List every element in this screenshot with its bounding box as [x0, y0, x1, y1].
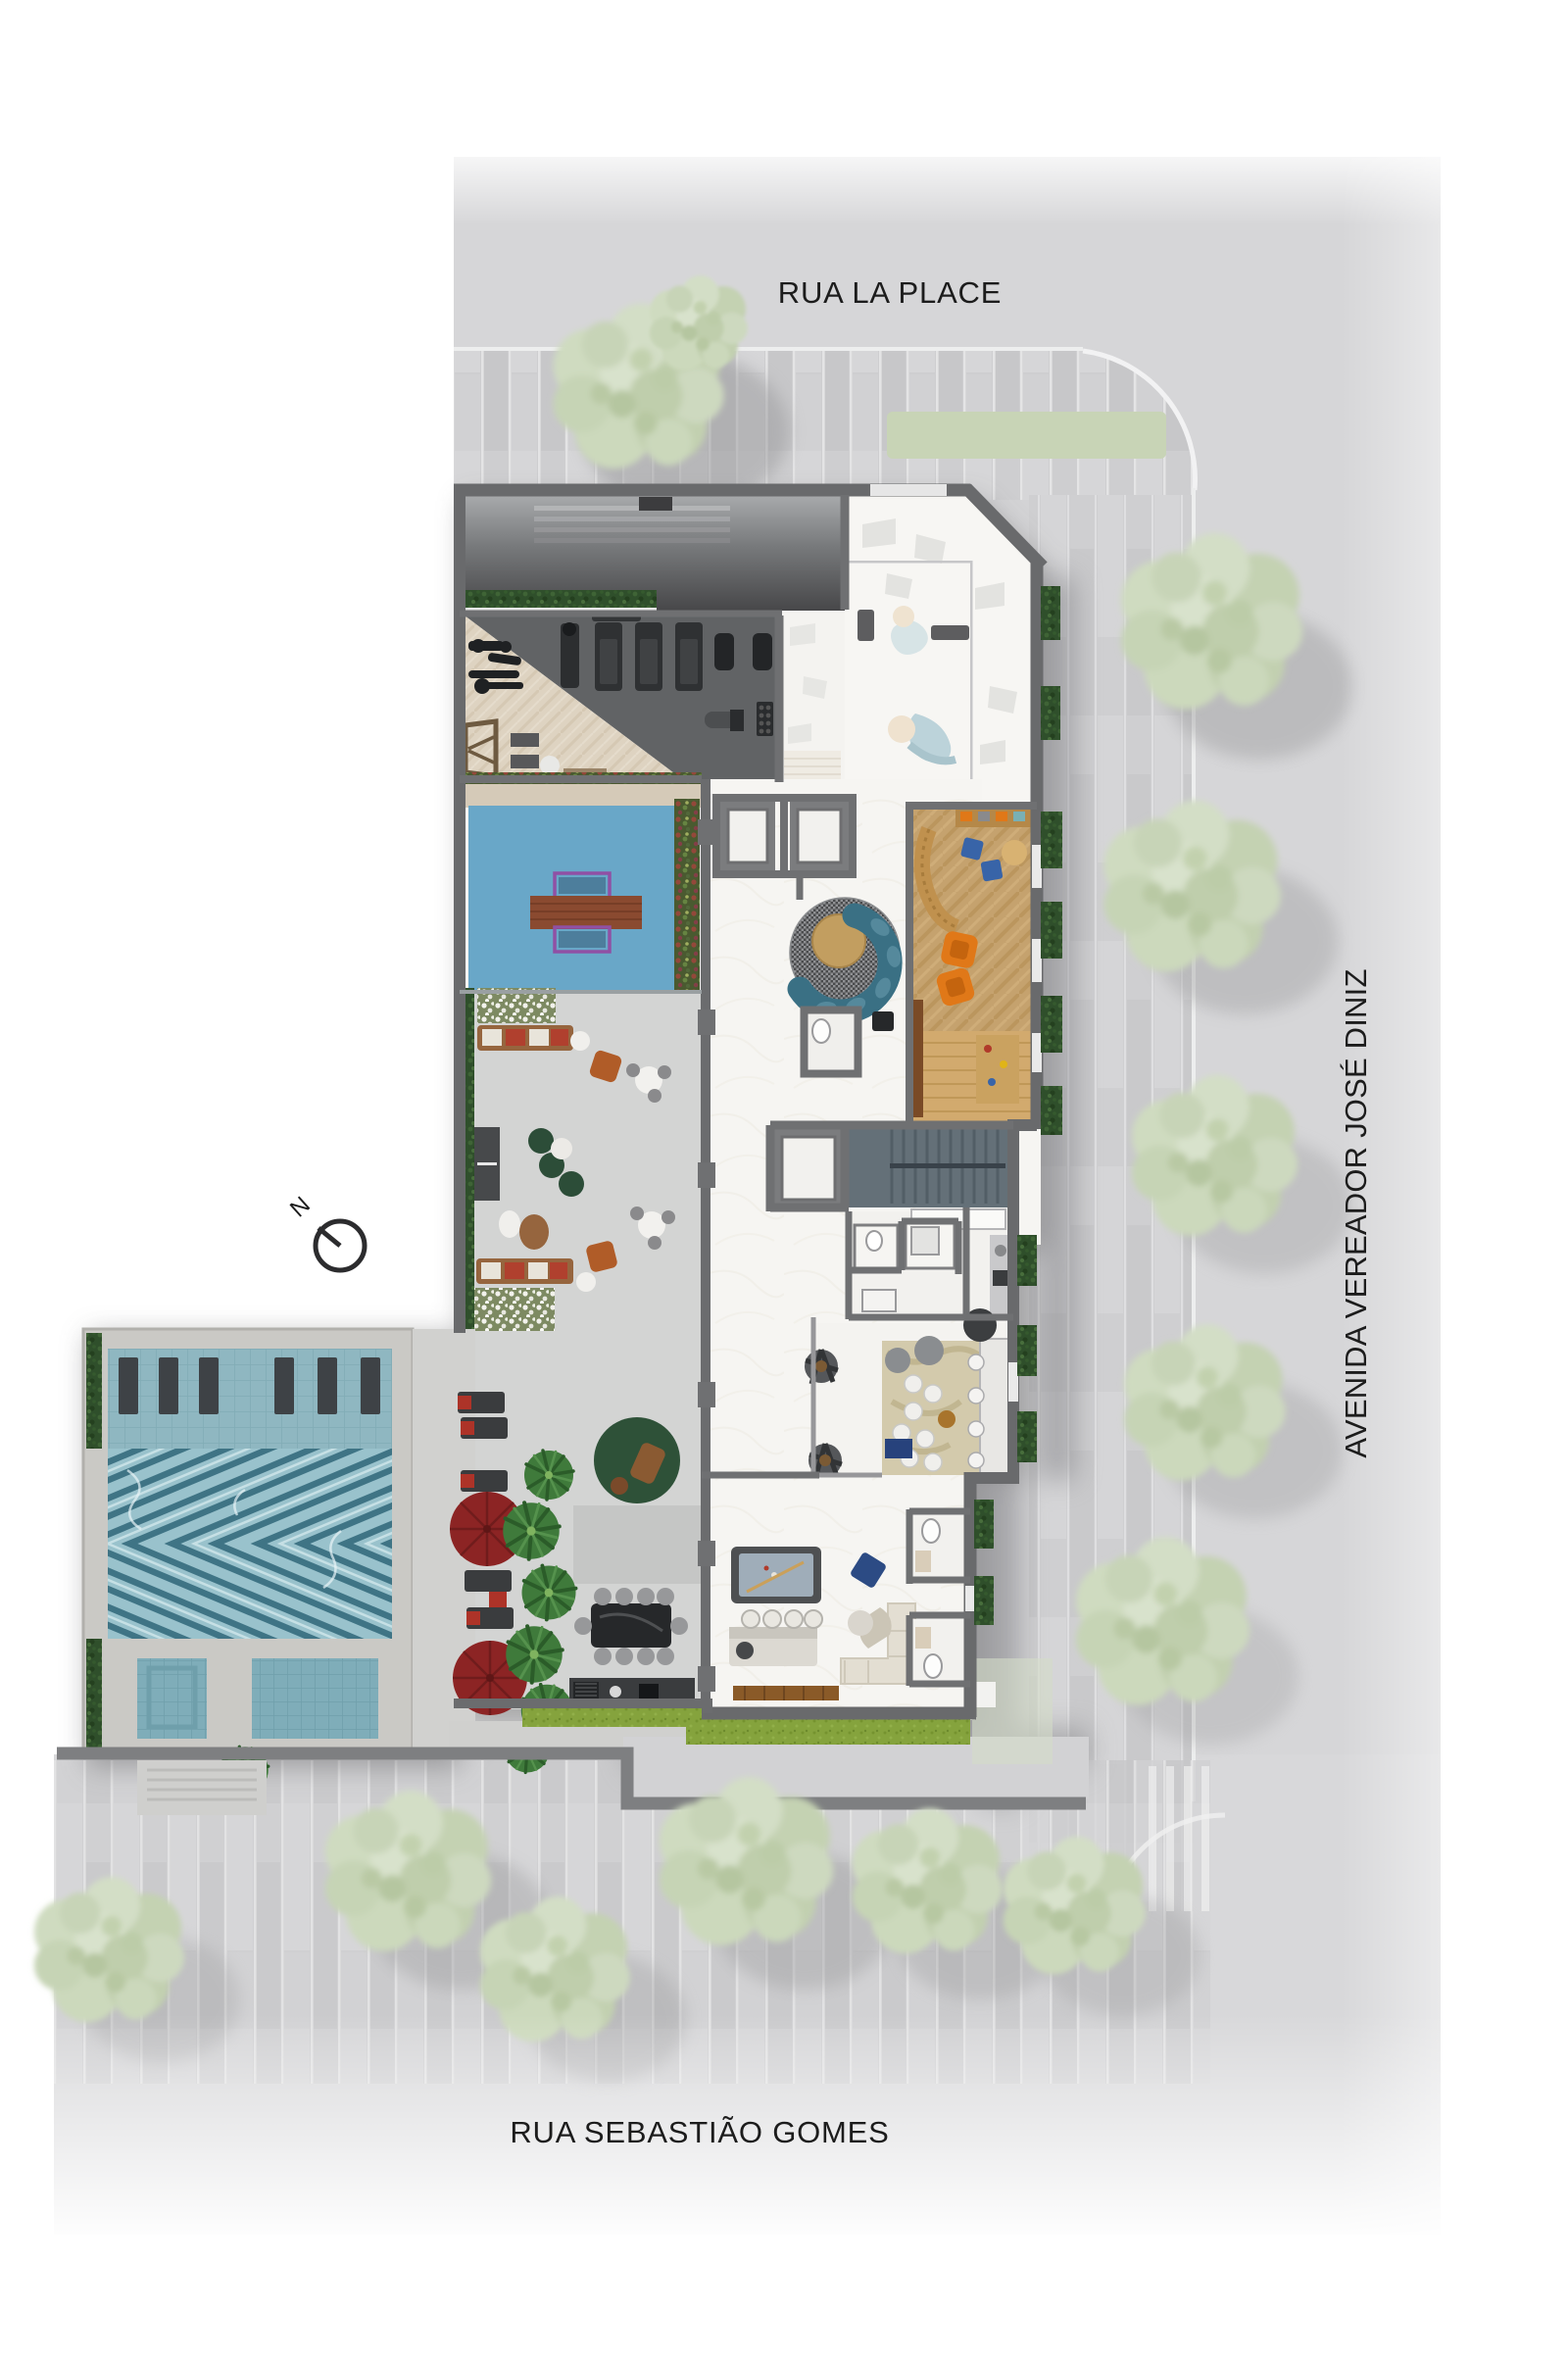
svg-text:AVENIDA VEREADOR JOSÉ DINIZ: AVENIDA VEREADOR JOSÉ DINIZ — [1339, 968, 1373, 1457]
svg-text:RUA LA PLACE: RUA LA PLACE — [778, 275, 1002, 310]
svg-text:RUA SEBASTIÃO GOMES: RUA SEBASTIÃO GOMES — [510, 2115, 889, 2149]
